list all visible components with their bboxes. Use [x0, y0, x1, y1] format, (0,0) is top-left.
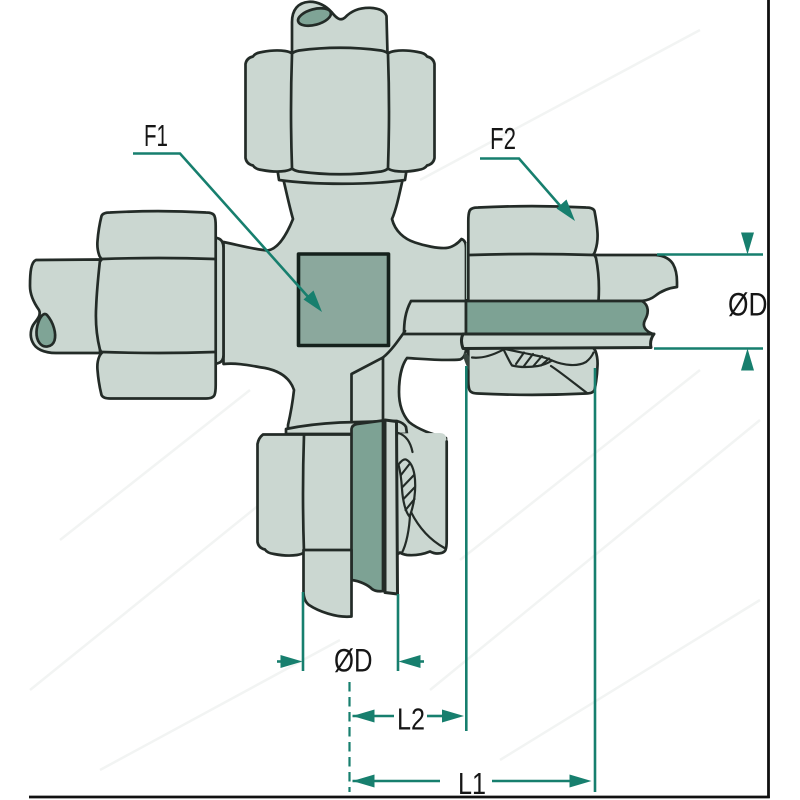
svg-text:F1: F1 [144, 118, 168, 153]
svg-text:L2: L2 [397, 702, 425, 737]
svg-text:ØD: ØD [728, 287, 768, 323]
svg-text:L1: L1 [458, 766, 486, 800]
svg-text:ØD: ØD [334, 643, 373, 679]
svg-text:F2: F2 [490, 121, 516, 156]
